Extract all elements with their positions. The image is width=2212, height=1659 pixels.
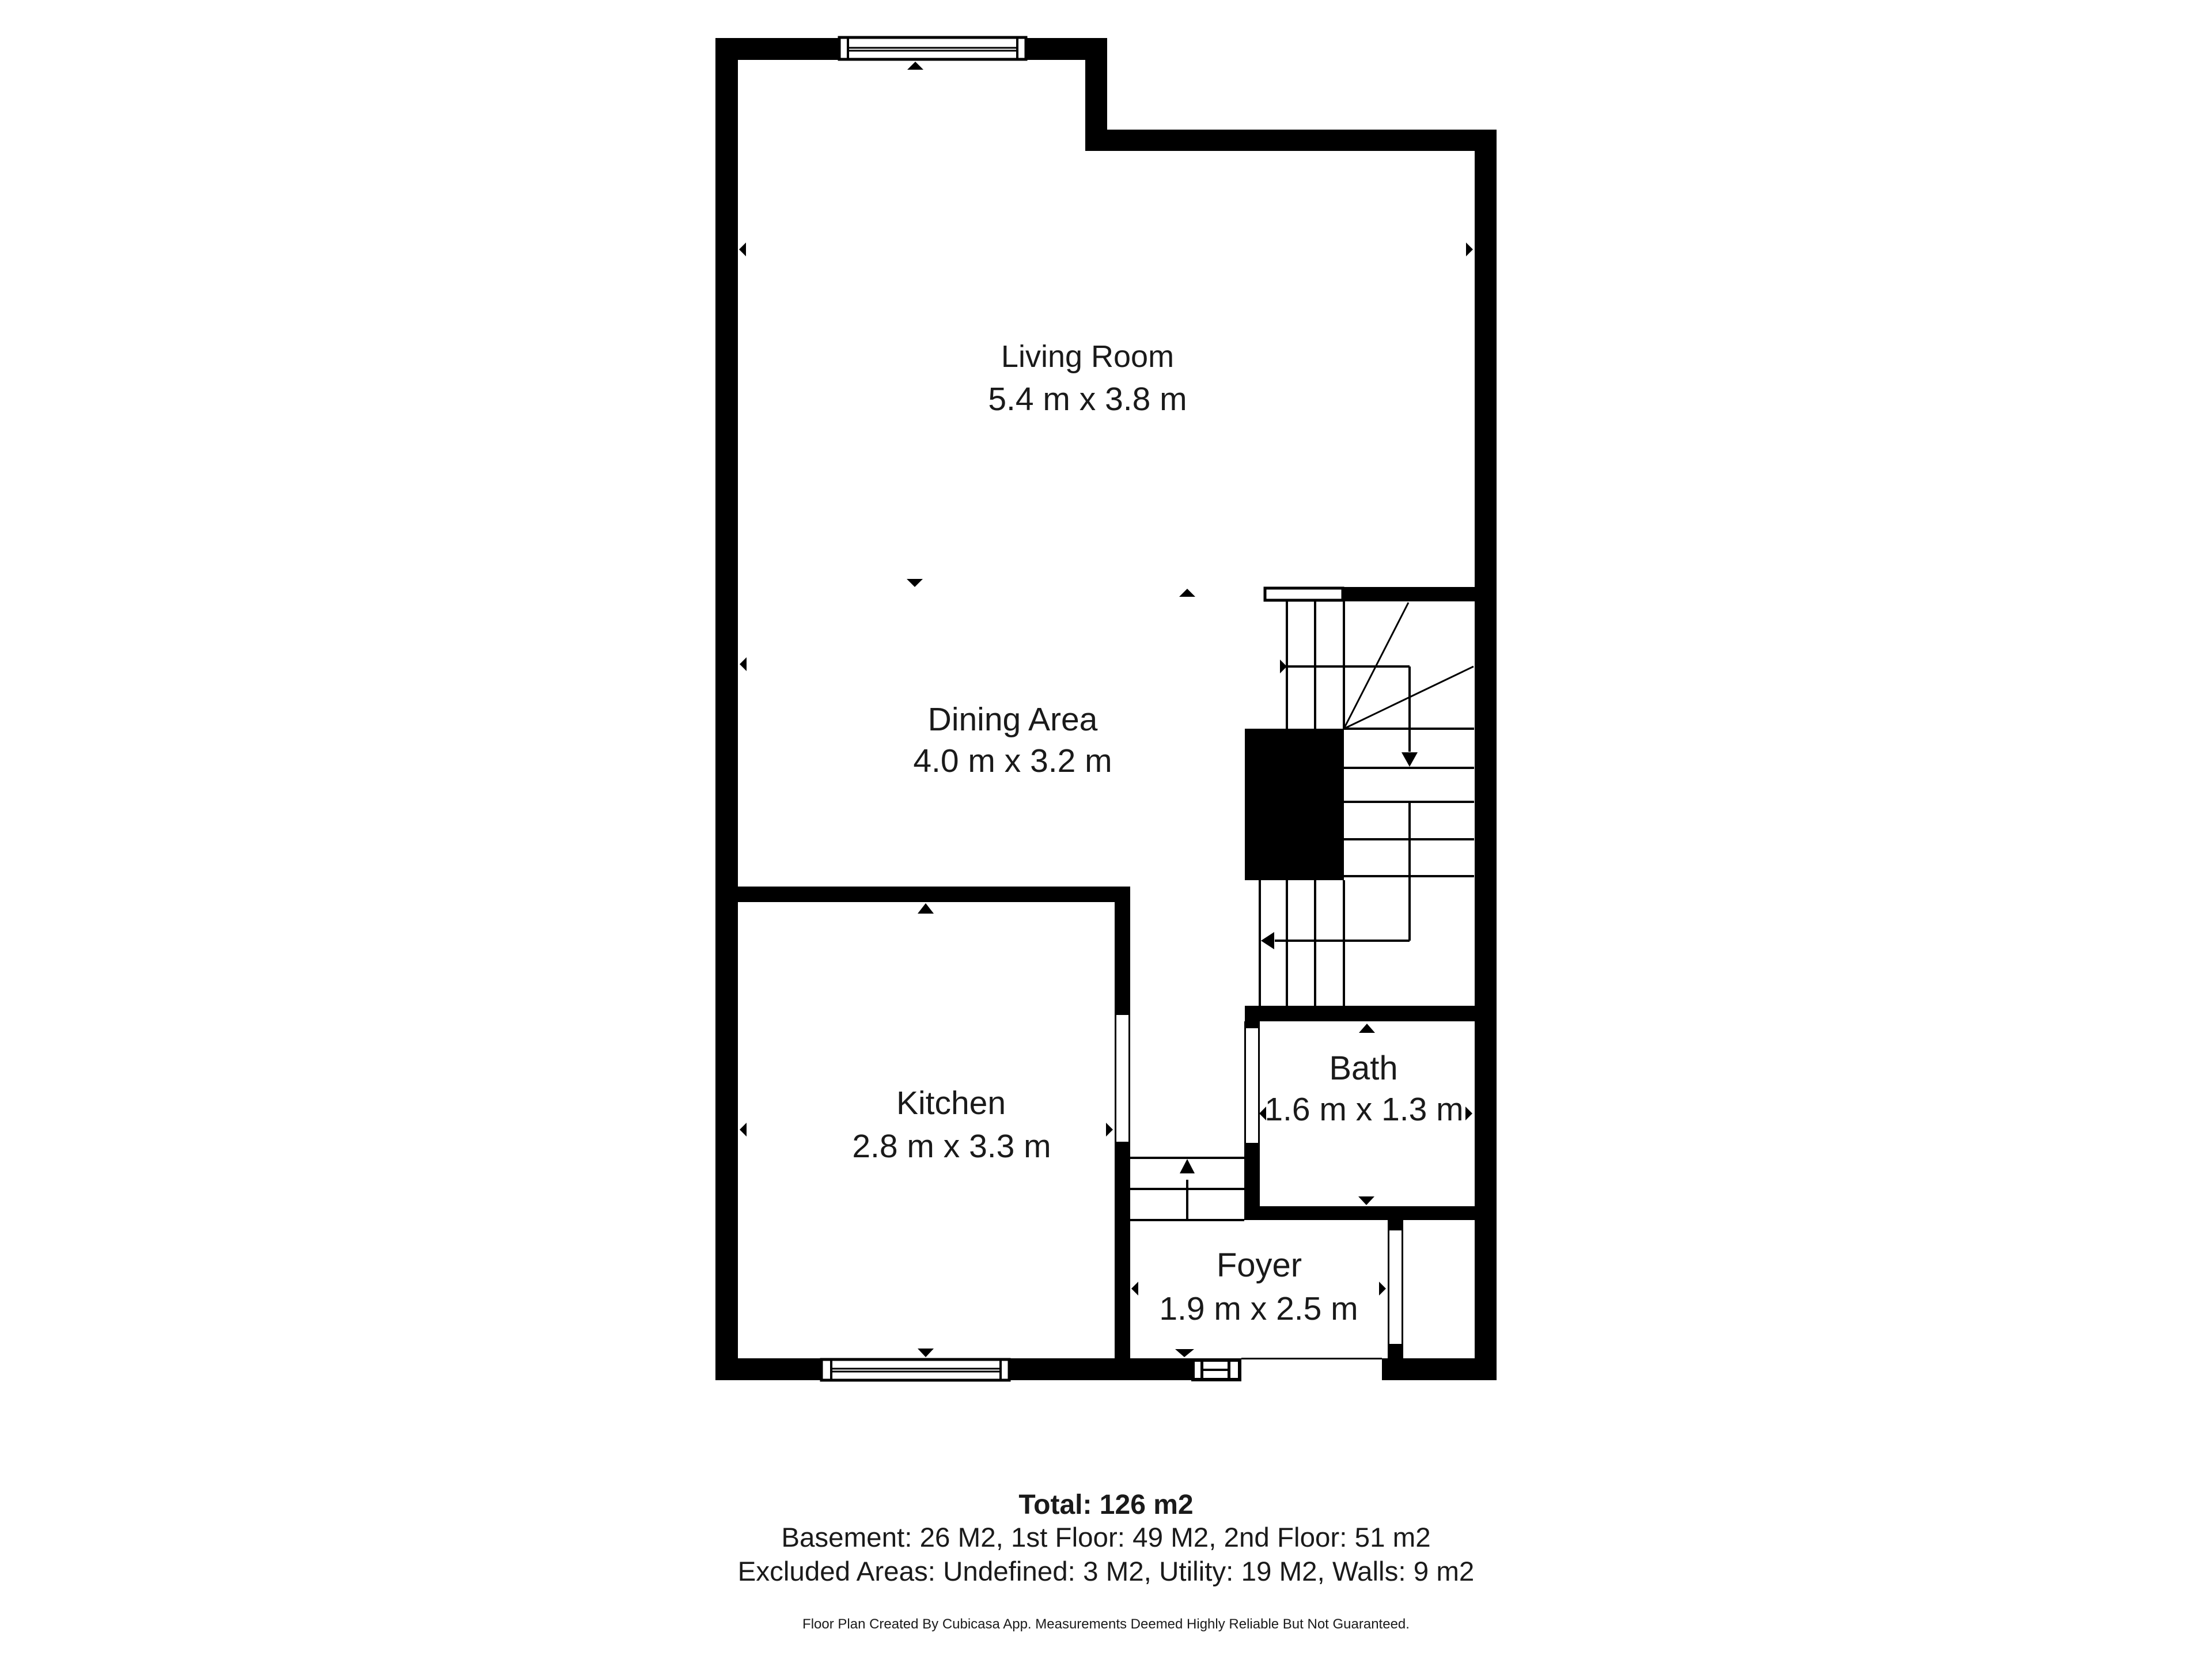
svg-text:Kitchen: Kitchen	[896, 1085, 1006, 1122]
svg-text:1.6 m x 1.3 m: 1.6 m x 1.3 m	[1264, 1091, 1463, 1128]
svg-text:5.4 m x 3.8 m: 5.4 m x 3.8 m	[988, 381, 1187, 418]
svg-text:Total: 126 m2: Total: 126 m2	[1018, 1490, 1193, 1520]
svg-text:2.8 m x 3.3 m: 2.8 m x 3.3 m	[852, 1128, 1051, 1165]
svg-text:Foyer: Foyer	[1217, 1247, 1302, 1284]
svg-text:1.9 m x 2.5 m: 1.9 m x 2.5 m	[1159, 1290, 1358, 1327]
svg-text:Basement: 26 M2, 1st Floor: 49: Basement: 26 M2, 1st Floor: 49 M2, 2nd F…	[781, 1522, 1430, 1553]
svg-text:Bath: Bath	[1329, 1050, 1397, 1087]
svg-text:4.0 m x 3.2 m: 4.0 m x 3.2 m	[913, 743, 1112, 779]
svg-text:Living Room: Living Room	[1001, 339, 1174, 374]
svg-text:Dining Area: Dining Area	[928, 701, 1098, 738]
svg-text:Excluded Areas: Undefined: 3 M: Excluded Areas: Undefined: 3 M2, Utility…	[738, 1556, 1475, 1587]
svg-text:Floor Plan Created By Cubicasa: Floor Plan Created By Cubicasa App. Meas…	[802, 1616, 1410, 1632]
